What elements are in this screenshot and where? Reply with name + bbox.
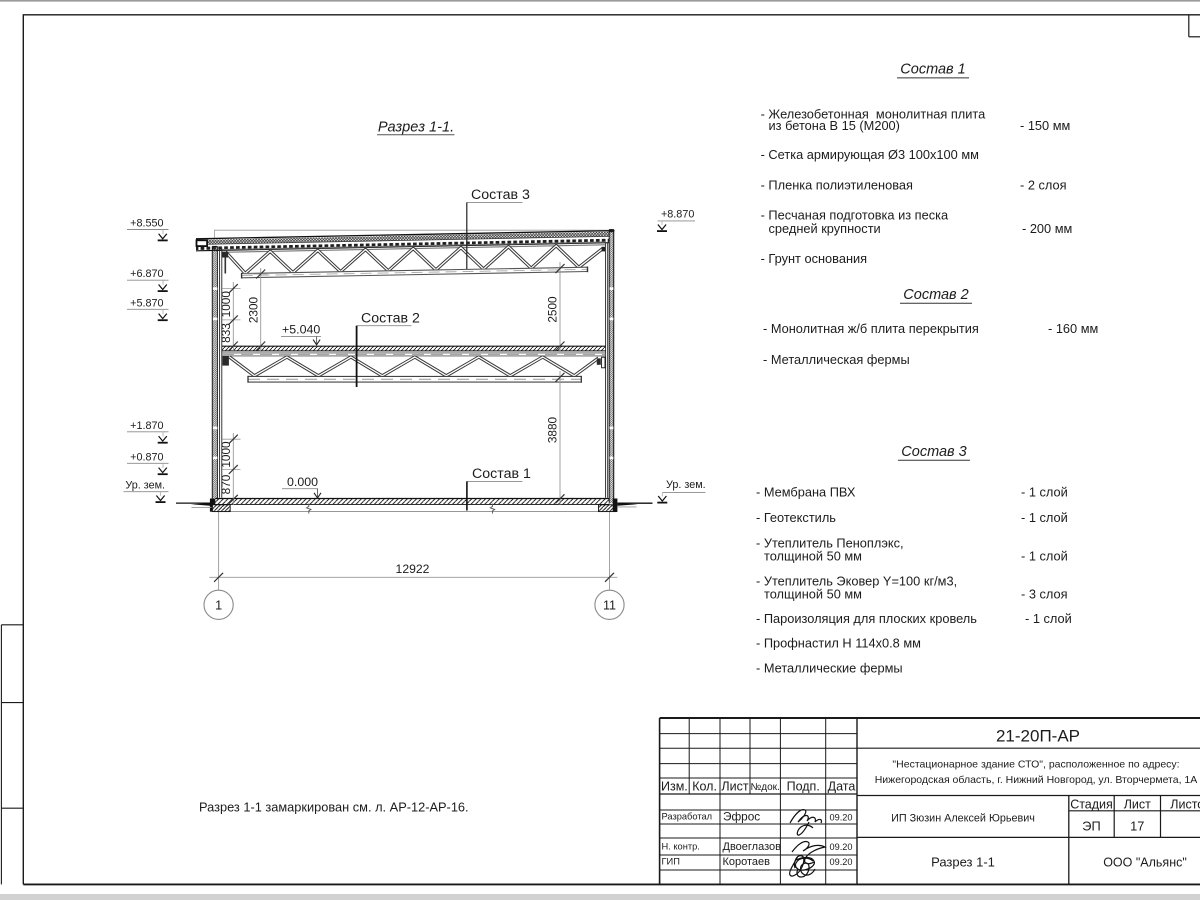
svg-text:21-20П-АР: 21-20П-АР bbox=[996, 727, 1080, 746]
svg-text:- 1 слой: - 1 слой bbox=[1021, 548, 1068, 563]
svg-text:- 150 мм: - 150 мм bbox=[1020, 118, 1070, 133]
svg-text:+8.550: +8.550 bbox=[130, 218, 163, 230]
svg-text:- Монолитная ж/б плита перекры: - Монолитная ж/б плита перекрытия bbox=[763, 321, 979, 336]
svg-text:+1.870: +1.870 bbox=[130, 420, 163, 432]
svg-text:- Металлическая фермы: - Металлическая фермы bbox=[763, 352, 910, 367]
svg-text:ГИП: ГИП bbox=[662, 857, 680, 867]
svg-text:Разрез 1-1: Разрез 1-1 bbox=[931, 855, 995, 870]
svg-text:"Нестационарное здание СТО", р: "Нестационарное здание СТО", расположенн… bbox=[892, 759, 1179, 771]
svg-text:833: 833 bbox=[219, 323, 233, 343]
svg-text:ИП Зюзин Алексей Юрьевич: ИП Зюзин Алексей Юрьевич bbox=[891, 813, 1035, 825]
svg-text:Подп.: Подп. bbox=[787, 780, 820, 794]
svg-text:Состав 3: Состав 3 bbox=[901, 444, 966, 460]
svg-text:ООО "Альянс": ООО "Альянс" bbox=[1103, 856, 1187, 870]
svg-text:средней крупности: средней крупности bbox=[769, 221, 881, 236]
svg-text:12922: 12922 bbox=[396, 562, 430, 576]
svg-text:0.000: 0.000 bbox=[287, 475, 318, 489]
svg-text:Изм.: Изм. bbox=[661, 780, 688, 794]
svg-text:Ур. зем.: Ур. зем. bbox=[666, 479, 706, 491]
svg-text:09.20: 09.20 bbox=[830, 857, 853, 867]
svg-text:Н. контр.: Н. контр. bbox=[662, 842, 700, 852]
svg-text:09.20: 09.20 bbox=[830, 842, 853, 852]
svg-text:+8.870: +8.870 bbox=[661, 209, 694, 221]
svg-text:- 160 мм: - 160 мм bbox=[1048, 321, 1098, 336]
svg-text:17: 17 bbox=[1130, 819, 1144, 834]
svg-text:- Металлические фермы: - Металлические фермы bbox=[756, 660, 903, 675]
svg-text:+5.870: +5.870 bbox=[130, 297, 163, 309]
svg-text:- Геотекстиль: - Геотекстиль bbox=[756, 510, 836, 525]
svg-text:+6.870: +6.870 bbox=[130, 268, 163, 280]
svg-text:Разрез 1-1.: Разрез 1-1. bbox=[378, 120, 454, 136]
svg-text:Ур. зем.: Ур. зем. bbox=[125, 480, 165, 492]
svg-text:Дата: Дата bbox=[828, 780, 856, 794]
svg-text:Коротаев: Коротаев bbox=[723, 856, 771, 868]
svg-text:2300: 2300 bbox=[247, 296, 261, 323]
svg-text:Нижегородская область, г. Нижн: Нижегородская область, г. Нижний Новгоро… bbox=[875, 774, 1198, 786]
svg-text:Состав 2: Состав 2 bbox=[361, 310, 420, 326]
svg-text:из бетона В 15 (М200): из бетона В 15 (М200) bbox=[769, 118, 900, 133]
svg-text:- 1 слой: - 1 слой bbox=[1021, 510, 1068, 525]
svg-text:2500: 2500 bbox=[546, 296, 560, 323]
svg-text:толщиной 50 мм: толщиной 50 мм bbox=[764, 586, 862, 601]
svg-text:Лист: Лист bbox=[721, 780, 748, 794]
svg-text:11: 11 bbox=[603, 598, 616, 612]
svg-text:Эфрос: Эфрос bbox=[723, 810, 760, 824]
svg-text:Двоеглазов: Двоеглазов bbox=[723, 841, 782, 853]
svg-text:толщиной 50 мм: толщиной 50 мм bbox=[764, 548, 862, 563]
svg-text:- Пленка полиэтиленовая: - Пленка полиэтиленовая bbox=[761, 177, 913, 192]
svg-text:Разрез 1-1 замаркирован см. л.: Разрез 1-1 замаркирован см. л. АР-12-АР-… bbox=[199, 800, 469, 815]
svg-text:- Сетка армирующая Ø3 100х100: - Сетка армирующая Ø3 100х100 мм bbox=[761, 147, 979, 162]
svg-text:Состав 2: Состав 2 bbox=[903, 287, 968, 303]
svg-text:- Грунт основания: - Грунт основания bbox=[761, 251, 868, 266]
svg-text:1000: 1000 bbox=[219, 441, 233, 468]
svg-text:Состав 1: Состав 1 bbox=[900, 62, 965, 78]
svg-text:Состав 1: Состав 1 bbox=[472, 466, 531, 482]
svg-text:Состав 3: Состав 3 bbox=[471, 187, 530, 203]
svg-text:- 2 слоя: - 2 слоя bbox=[1020, 177, 1067, 192]
svg-text:+0.870: +0.870 bbox=[130, 451, 163, 463]
svg-text:ЭП: ЭП bbox=[1082, 819, 1100, 834]
svg-text:№док.: №док. bbox=[751, 782, 780, 793]
svg-text:- 3 слоя: - 3 слоя bbox=[1021, 586, 1068, 601]
svg-text:Лист: Лист bbox=[1124, 798, 1151, 812]
svg-text:- Профнастил Н 114х0.8 мм: - Профнастил Н 114х0.8 мм bbox=[756, 636, 921, 651]
svg-text:- 200 мм: - 200 мм bbox=[1022, 221, 1072, 236]
svg-text:- 1 слой: - 1 слой bbox=[1021, 485, 1068, 500]
svg-text:1000: 1000 bbox=[219, 291, 233, 318]
svg-text:+5.040: +5.040 bbox=[282, 323, 320, 337]
svg-text:09.20: 09.20 bbox=[830, 813, 853, 823]
svg-text:1: 1 bbox=[215, 598, 222, 612]
svg-text:- Пароизоляция для плоских кро: - Пароизоляция для плоских кровель bbox=[756, 611, 977, 626]
svg-text:3880: 3880 bbox=[546, 416, 560, 443]
svg-text:Листов: Листов bbox=[1170, 798, 1200, 812]
svg-text:Кол.: Кол. bbox=[692, 780, 717, 794]
svg-text:- Мембрана ПВХ: - Мембрана ПВХ bbox=[756, 485, 856, 500]
svg-text:870: 870 bbox=[219, 474, 233, 494]
svg-text:Разработал: Разработал bbox=[662, 812, 713, 822]
svg-text:Стадия: Стадия bbox=[1070, 798, 1113, 812]
svg-text:- 1 слой: - 1 слой bbox=[1025, 611, 1072, 626]
